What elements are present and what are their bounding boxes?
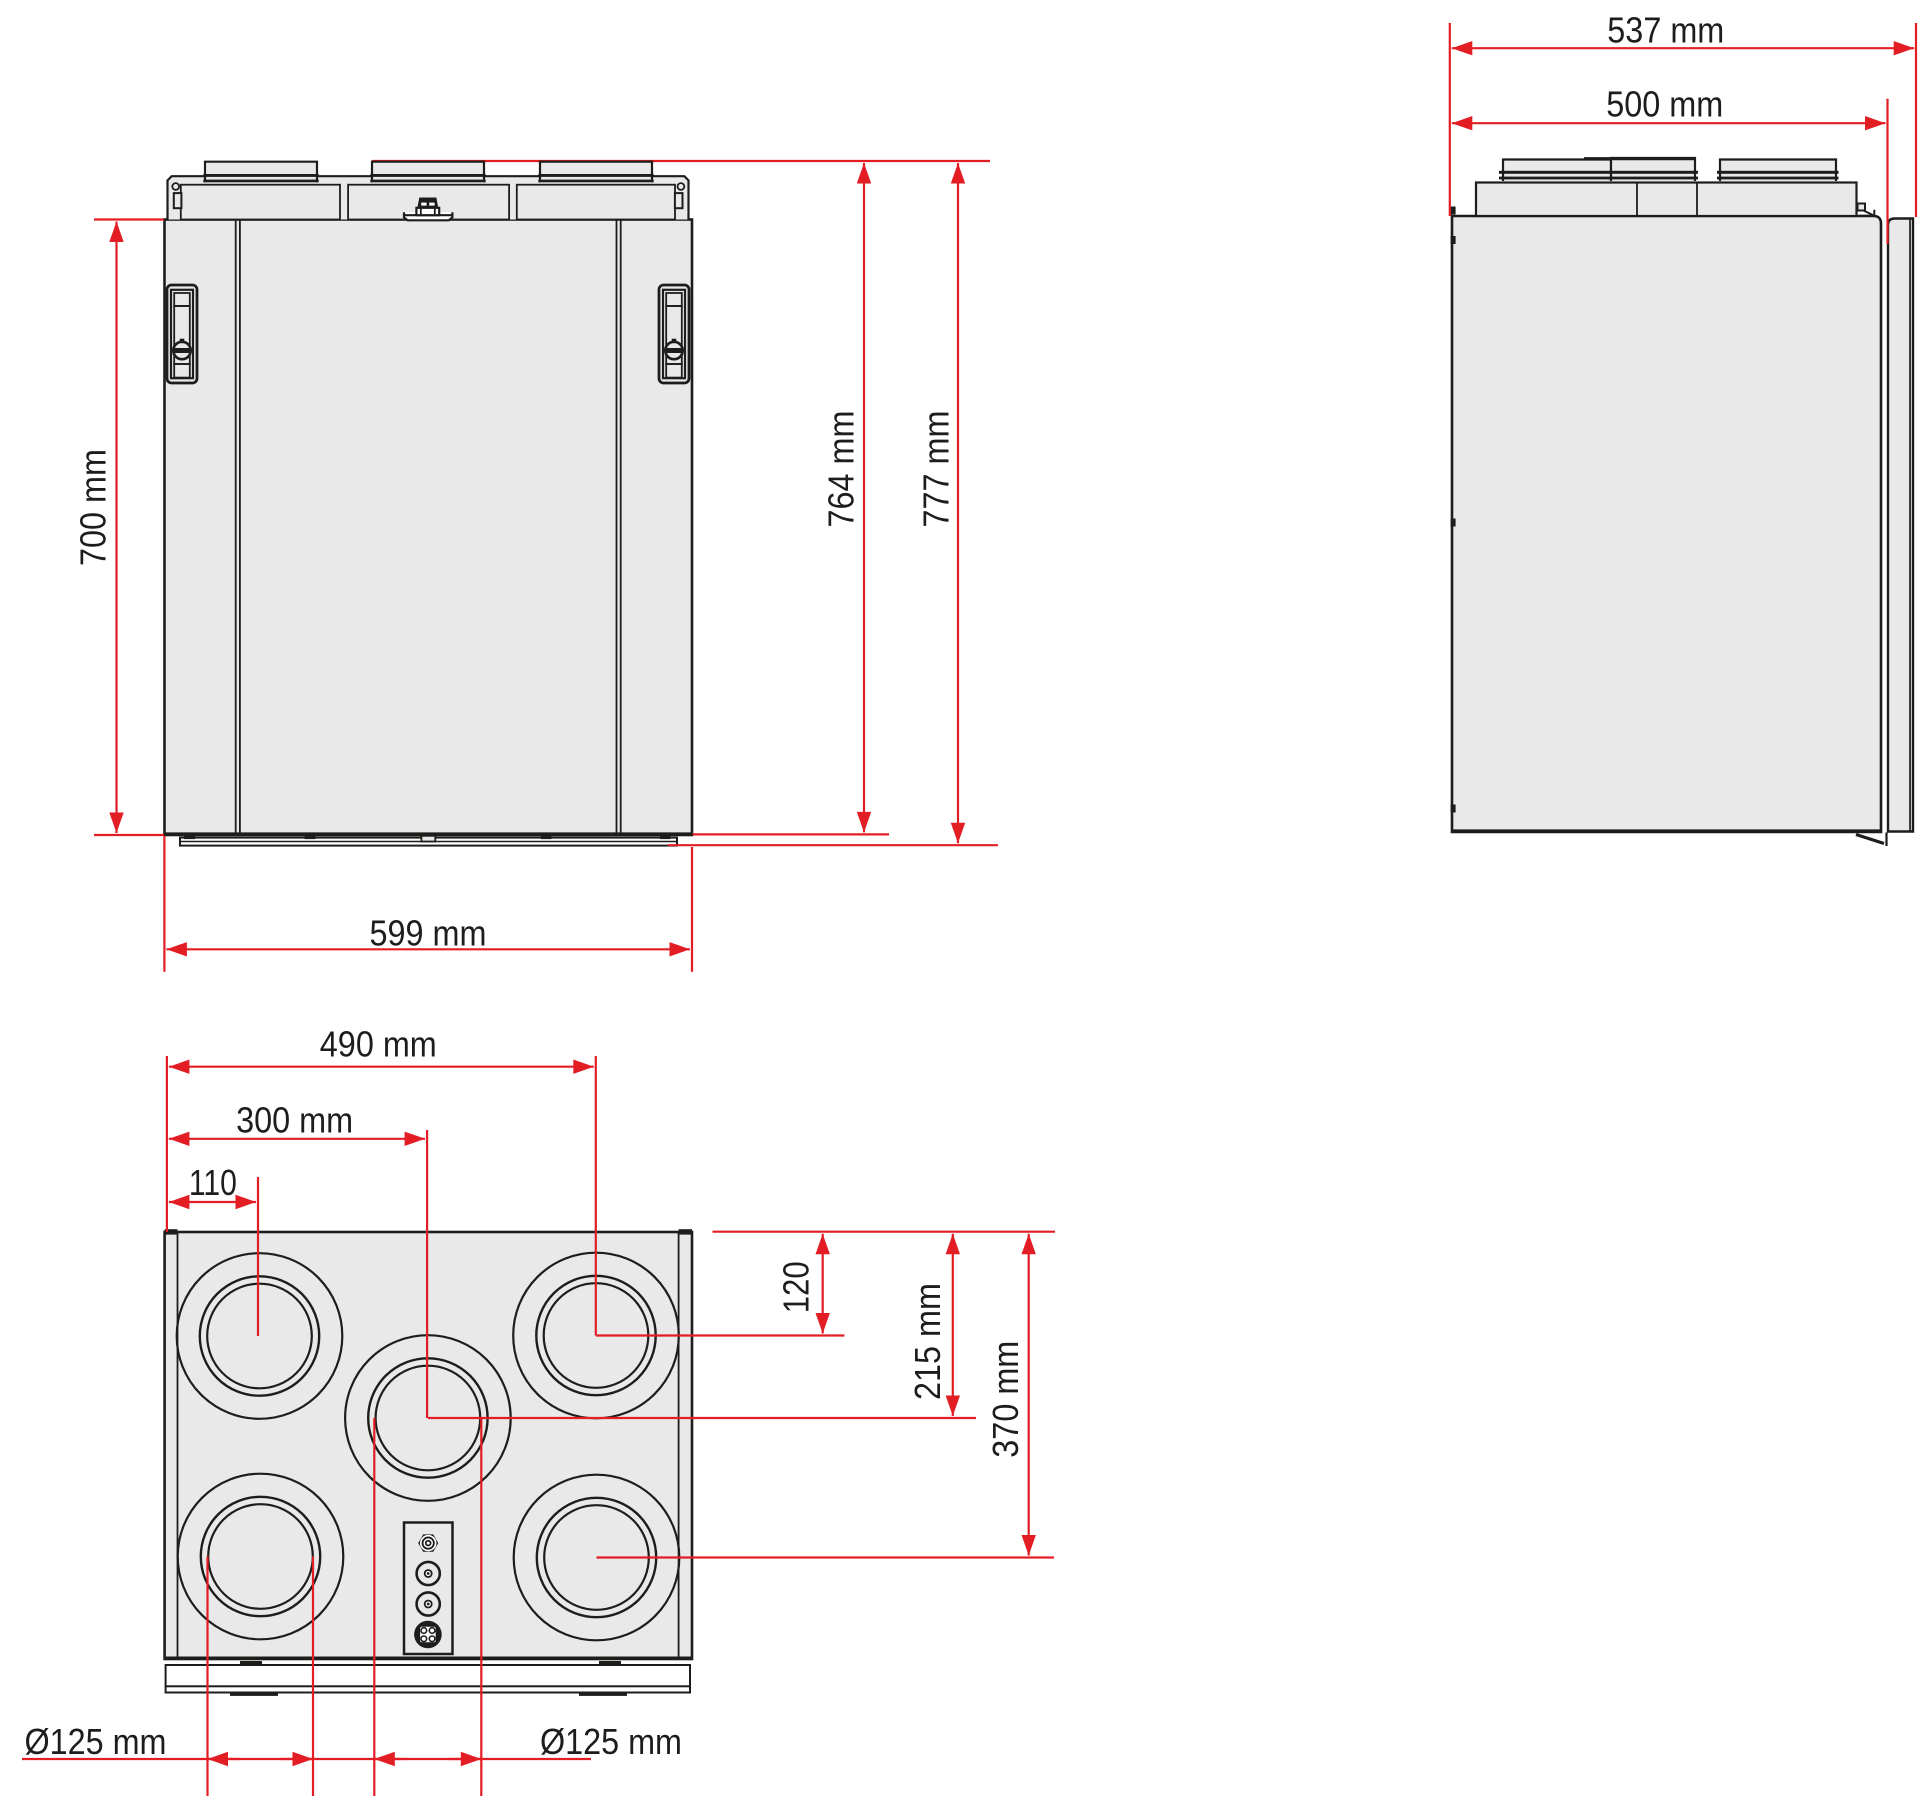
svg-text:300 mm: 300 mm <box>236 1100 353 1141</box>
svg-text:490 mm: 490 mm <box>320 1024 437 1065</box>
svg-text:764 mm: 764 mm <box>820 411 861 528</box>
svg-text:Ø125 mm: Ø125 mm <box>540 1721 682 1762</box>
svg-text:110: 110 <box>189 1162 237 1203</box>
svg-text:777 mm: 777 mm <box>915 411 956 528</box>
svg-text:215 mm: 215 mm <box>907 1283 948 1400</box>
svg-text:599 mm: 599 mm <box>370 912 487 953</box>
svg-text:Ø125 mm: Ø125 mm <box>25 1721 167 1762</box>
svg-text:120: 120 <box>775 1261 816 1313</box>
svg-text:500 mm: 500 mm <box>1606 84 1723 125</box>
svg-text:370 mm: 370 mm <box>985 1341 1026 1458</box>
svg-text:700 mm: 700 mm <box>73 449 114 566</box>
svg-text:537 mm: 537 mm <box>1607 9 1724 50</box>
